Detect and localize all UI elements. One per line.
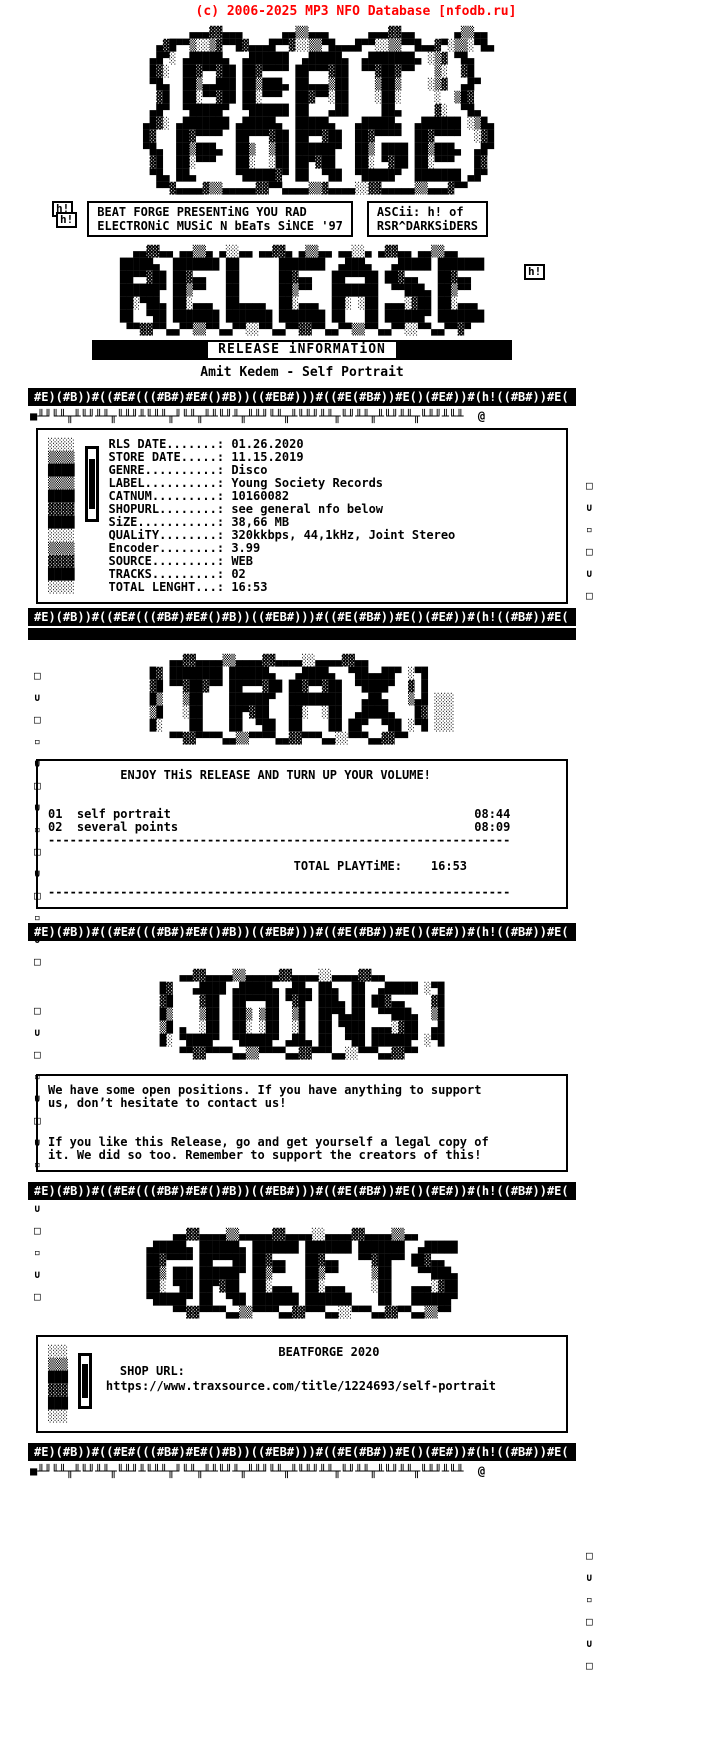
joins-logo-art: ▄▄▓▓▄▄▄▄▒▒▄▄▄▄▄▓▓▄▄▄▄░░▄▄▄▄▓▓▄▄ █▓ ▄████…: [160, 969, 445, 1060]
presenting-line2: ELECTRONiC MUSiC N bEaTs SiNCE '97: [97, 219, 343, 233]
heavy-border-2: #E)(#B))#((#E#(((#B#)#E#()#B))((#EB#)))#…: [28, 608, 576, 626]
right-deco-strip-2: □ ∪ ▫ □ ∪ □: [586, 1545, 593, 1677]
small-border-2: ■╨╜╙╨╥╨╙╜╨╨╥╙╨╜╨╙╨╨╥╜╙╨╥╨╨╙╜╨╥╨╨╜╙╨╥╨╙╨╜…: [28, 1463, 576, 1479]
ascii-credit-line2: RSR^DARKSiDERS: [377, 219, 478, 233]
release-info-bar: RELEASE iNFORMATiON: [92, 340, 512, 360]
footer-brand: BEATFORGE 2020: [102, 1345, 556, 1360]
small-border-1: ■╨╜╙╨╥╨╙╜╨╨╥╙╨╜╨╙╨╨╥╜╙╨╥╨╨╙╜╨╥╨╨╜╙╨╥╨╙╨╜…: [28, 408, 576, 424]
heavy-border-3: #E)(#B))#((#E#(((#B#)#E#()#B))((#EB#)))#…: [28, 923, 576, 941]
tracklist-lines: ENJOY THiS RELEASE AND TURN UP YOUR VOLU…: [48, 769, 556, 899]
release-title: Amit Kedem - Self Portrait: [28, 364, 576, 382]
left-deco-strip-1: □ ∪ □ ▫ ∪ □ ∪ ▫ □ ∪ □ ▫ ∪ □: [34, 665, 41, 973]
presenting-chip: BEAT FORGE PRESENTiNG YOU RAD ELECTRONiC…: [87, 201, 353, 237]
gradient-column: ░░░░ ▒▒▒▒ ████ ▒▒▒▒ ████ ▓▓▓▓ ████ ░░░░ …: [48, 438, 75, 594]
join-text-box: We have some open positions. If you have…: [36, 1074, 568, 1172]
left-deco-strip-2: □ ∪ □ ▫ ∪ □ ∪ ▫ □ ∪ □ ▫ ∪ □: [34, 1000, 41, 1308]
site-credit: (c) 2006-2025 MP3 NFO Database [nfodb.ru…: [0, 0, 712, 26]
shop-url-link[interactable]: https://www.traxsource.com/title/1224693…: [106, 1379, 496, 1393]
tracklist-box: ENJOY THiS RELEASE AND TURN UP YOUR VOLU…: [36, 759, 568, 909]
heavy-border-4: #E)(#B))#((#E#(((#B#)#E#()#B))((#EB#)))#…: [28, 1182, 576, 1200]
shop-url-label: SHOP URL:: [120, 1364, 556, 1379]
credits-row: h! BEAT FORGE PRESENTiNG YOU RAD ELECTRO…: [52, 201, 576, 237]
h-badge-right: h!: [524, 264, 545, 280]
nfo-page: (c) 2006-2025 MP3 NFO Database [nfodb.ru…: [0, 0, 712, 1764]
footer-box: ░░░ ▒▒▒ ███ ▓▓▓ ███ ░░░ BEATFORGE 2020 S…: [36, 1335, 568, 1433]
footer-gradient-column: ░░░ ▒▒▒ ███ ▓▓▓ ███ ░░░: [48, 1345, 68, 1423]
footer-content: BEATFORGE 2020 SHOP URL: https://www.tra…: [102, 1345, 556, 1394]
presenting-line1: BEAT FORGE PRESENTiNG YOU RAD: [97, 205, 343, 219]
release-info-box: ░░░░ ▒▒▒▒ ████ ▒▒▒▒ ████ ▓▓▓▓ ████ ░░░░ …: [36, 428, 568, 604]
heavy-border-5: #E)(#B))#((#E#(((#B#)#E#()#B))((#EB#)))#…: [28, 1443, 576, 1461]
release-logo-art: ▄▄▓▓▄▄ ▄▄▒▒▄ ▄░░▄▄ ▄▄▓▓▄ ▄▒▒▄▄ ▄▄░░▄ ▄▓▓…: [120, 245, 484, 336]
join-paragraph-2: If you like this Release, go and get you…: [48, 1136, 556, 1162]
join-paragraph-1: We have some open positions. If you have…: [48, 1084, 556, 1110]
release-info-lines: RLS DATE.......: 01.26.2020 STORE DATE..…: [109, 438, 456, 594]
ascii-credit-chip: ASCii: h! of RSR^DARKSiDERS: [367, 201, 488, 237]
trax-logo-art: ▄▄▓▓▄▄▄▄▒▒▄▄▄▄▓▓▄▄▄▄░░▄▄▄▄▓▓▄▄ █▓ ██████…: [150, 654, 455, 745]
ascii-credit-line1: ASCii: h! of: [377, 205, 478, 219]
h-badge-left: h!: [56, 212, 77, 228]
release-info-bar-label: RELEASE iNFORMATiON: [208, 342, 396, 358]
greets-logo-art: ▄▄▓▓▄▄▄▄▒▒▄▄▄▄▄▓▓▄▄▄▄░░▄▄▄▄▓▓▄▄▄▄▒▒▄▄ ▄█…: [146, 1228, 457, 1319]
footer-slot-decoration: [78, 1353, 92, 1409]
nfo-content: ▄▄▄▓▓▄▄▄ ▄▄▒▒▄▄▄ ▄▄▄▓▓▄▄ ▄▒▒▄▄ ▄▓█▀▀▒░░▒…: [28, 26, 576, 1479]
black-divider-1: [28, 628, 576, 640]
heavy-border-1: #E)(#B))#((#E#(((#B#)#E#()#B))((#EB#)))#…: [28, 388, 576, 406]
slot-decoration: [85, 446, 99, 522]
beatforge-logo-art: ▄▄▄▓▓▄▄▄ ▄▄▒▒▄▄▄ ▄▄▄▓▓▄▄ ▄▒▒▄▄ ▄▓█▀▀▒░░▒…: [110, 26, 494, 195]
right-deco-strip-1: □ ∪ ▫ □ ∪ □: [586, 475, 593, 607]
